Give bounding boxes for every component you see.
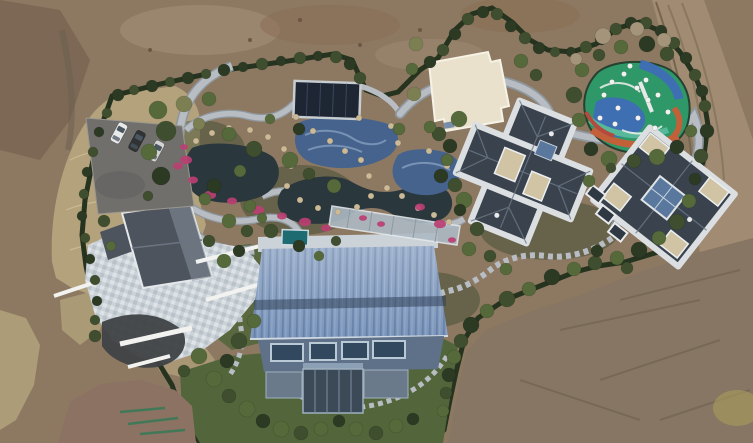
rock <box>327 138 333 144</box>
flower-bed <box>180 156 192 164</box>
shrub <box>407 413 419 425</box>
shrub <box>218 64 230 76</box>
shrub <box>699 100 711 112</box>
window <box>343 343 367 358</box>
flower-bed <box>377 221 385 227</box>
central-glass-wall <box>303 369 363 413</box>
play-equipment <box>609 79 614 84</box>
stone <box>248 38 252 42</box>
shrub <box>689 173 701 185</box>
shrub <box>201 69 211 79</box>
shrub <box>193 118 205 130</box>
shrub <box>331 236 341 246</box>
solar-canopy <box>293 81 360 119</box>
shrub <box>176 96 192 112</box>
rock <box>395 140 401 146</box>
shrub <box>276 56 286 66</box>
shrub <box>567 262 581 276</box>
shrub <box>550 47 560 57</box>
shrub <box>448 178 462 192</box>
shrub <box>694 149 708 163</box>
shrub <box>652 231 666 245</box>
shrub <box>443 139 457 153</box>
shrub <box>499 291 515 307</box>
shrub <box>94 127 104 137</box>
shrub <box>246 141 262 157</box>
shrub <box>477 6 489 18</box>
rock <box>426 148 432 154</box>
flower-bed <box>227 198 237 205</box>
shrub <box>696 85 708 97</box>
shrub <box>349 422 363 436</box>
rock <box>431 212 437 218</box>
stone <box>358 43 362 47</box>
shrub <box>222 214 236 228</box>
rock <box>335 209 341 215</box>
rock <box>358 157 364 163</box>
shrub <box>303 168 315 180</box>
rock <box>342 148 348 154</box>
rock <box>354 204 360 210</box>
flower-bed <box>448 237 456 243</box>
rock <box>315 205 321 211</box>
shrub <box>670 140 684 154</box>
aerial-photo-stage <box>0 0 753 443</box>
rock <box>293 114 299 120</box>
shrub <box>680 52 692 64</box>
shrub <box>389 419 403 433</box>
shrub <box>544 269 560 285</box>
shrub <box>202 92 216 106</box>
shrub <box>566 87 582 103</box>
shrub <box>241 225 253 237</box>
bare-tree <box>570 53 582 65</box>
shrub <box>354 72 366 84</box>
shrub <box>256 414 270 428</box>
shrub <box>393 123 405 135</box>
shrub <box>424 121 436 133</box>
shrub <box>293 123 305 135</box>
shrub <box>294 52 306 64</box>
shrub <box>256 58 268 70</box>
parking-stain <box>95 171 145 199</box>
shrub <box>206 371 222 387</box>
shrub <box>437 405 449 417</box>
shrub <box>106 241 116 251</box>
shrub <box>217 254 231 268</box>
shrub <box>580 41 592 53</box>
shrub <box>330 51 342 63</box>
shrub <box>454 334 468 348</box>
shrub <box>621 262 633 274</box>
shrub <box>484 250 496 262</box>
play-equipment <box>645 97 650 102</box>
shrub <box>462 13 474 25</box>
shrub <box>514 54 528 68</box>
shrub <box>199 193 211 205</box>
flower-bed <box>321 225 331 232</box>
shrub <box>149 101 167 119</box>
shrub <box>463 317 479 333</box>
shrub <box>90 315 100 325</box>
shrub <box>505 20 517 32</box>
shrub <box>89 330 101 342</box>
bare-tree <box>657 33 671 47</box>
play-equipment <box>621 71 626 76</box>
shrub <box>129 85 139 95</box>
shrub <box>239 401 255 417</box>
shrub <box>588 256 602 270</box>
roof-highlight <box>250 246 448 340</box>
shrub <box>614 40 628 54</box>
shrub <box>610 23 622 35</box>
shrub <box>682 194 696 208</box>
flower-bed <box>415 204 425 211</box>
dirt-streak <box>260 5 400 45</box>
shrub <box>447 350 461 364</box>
flower-bed <box>434 220 446 228</box>
stone <box>148 48 152 52</box>
play-equipment <box>615 105 620 110</box>
shrub <box>231 333 247 349</box>
shrub <box>182 72 194 84</box>
window <box>311 344 335 359</box>
dirt-mound <box>120 5 280 55</box>
play-equipment <box>635 115 640 120</box>
shrub <box>156 121 176 141</box>
bare-tree <box>595 28 611 44</box>
shrub <box>191 348 207 364</box>
shrub <box>333 415 345 427</box>
shrub <box>112 89 124 101</box>
shrub <box>480 304 494 318</box>
stone <box>298 18 302 22</box>
stone <box>418 28 422 32</box>
rock <box>193 138 199 144</box>
shrub <box>265 114 275 124</box>
shrub <box>434 169 448 183</box>
shrub <box>572 113 586 127</box>
flower-bed <box>173 163 183 170</box>
rock <box>247 127 253 133</box>
shrub <box>247 314 261 328</box>
play-equipment <box>655 92 660 97</box>
rock <box>284 183 290 189</box>
shrub <box>314 422 328 436</box>
rock <box>399 193 405 199</box>
shrub <box>685 125 697 137</box>
estate-aerial-photo <box>0 0 753 443</box>
shrub <box>282 152 298 168</box>
rock <box>368 193 374 199</box>
play-equipment <box>643 77 648 82</box>
shrub <box>244 200 256 212</box>
side-wing-west <box>266 372 302 398</box>
rock <box>384 185 390 191</box>
shrub <box>222 127 236 141</box>
shrub <box>660 47 674 61</box>
rock <box>297 197 303 203</box>
shrub <box>313 51 323 61</box>
shrub <box>519 32 531 44</box>
shrub <box>77 211 87 221</box>
cream-pavilion-roof <box>429 52 509 131</box>
play-equipment <box>665 109 670 114</box>
flower-bed <box>359 215 367 221</box>
shrub <box>407 87 421 101</box>
play-equipment <box>601 92 606 97</box>
shrub <box>522 282 536 296</box>
shrub <box>178 365 190 377</box>
bare-tree <box>630 22 644 36</box>
shrub <box>451 111 467 127</box>
shrub <box>143 191 153 201</box>
shrub <box>409 37 423 51</box>
shrub <box>591 245 603 257</box>
shrub <box>437 44 449 56</box>
shrub <box>406 63 418 75</box>
shrub <box>583 175 595 187</box>
shrub <box>203 235 215 247</box>
flower-bed <box>180 144 188 150</box>
rock <box>310 128 316 134</box>
shrub <box>222 389 236 403</box>
shrub <box>639 36 655 52</box>
play-equipment <box>597 115 602 120</box>
shrub <box>98 215 110 227</box>
shrub <box>454 204 466 216</box>
shrub <box>669 214 685 230</box>
shrub <box>440 387 452 399</box>
shrub <box>470 222 484 236</box>
shrub <box>344 58 356 70</box>
shrub <box>294 426 308 440</box>
shrub <box>207 179 221 193</box>
rock <box>265 134 271 140</box>
shrub <box>530 69 542 81</box>
shrub <box>90 275 100 285</box>
shrub <box>424 56 436 68</box>
play-equipment <box>627 63 632 68</box>
shrub <box>627 154 641 168</box>
shrub <box>92 296 102 306</box>
shrub <box>152 167 170 185</box>
shrub <box>606 163 616 173</box>
shrub <box>233 245 245 257</box>
play-equipment <box>652 125 657 130</box>
shrub <box>85 254 95 264</box>
shrub <box>293 240 305 252</box>
play-equipment <box>612 121 617 126</box>
shrub <box>80 233 90 243</box>
shrub <box>610 251 624 265</box>
flower-bed <box>299 218 311 226</box>
shrub <box>234 165 246 177</box>
shrub <box>257 213 267 223</box>
play-equipment <box>634 85 639 90</box>
shrub <box>220 354 234 368</box>
shrub <box>327 179 341 193</box>
rock <box>281 146 287 152</box>
side-wing-east <box>364 370 408 398</box>
shrub <box>88 147 98 157</box>
shrub <box>79 189 89 199</box>
shrub <box>238 62 248 72</box>
flower-bed <box>188 177 198 184</box>
solar-panel-roof <box>293 81 360 119</box>
rock <box>366 173 372 179</box>
shrub <box>369 426 383 440</box>
shrub <box>689 69 701 81</box>
window <box>374 342 404 357</box>
shrub <box>442 368 456 382</box>
shrub <box>491 8 503 20</box>
shrub <box>441 154 453 166</box>
rock <box>356 115 362 121</box>
shrub <box>82 167 92 177</box>
shrub <box>141 144 157 160</box>
shrub <box>102 108 112 118</box>
shrub <box>146 80 158 92</box>
shrub <box>593 49 605 61</box>
rock <box>209 130 215 136</box>
shrub <box>314 251 324 261</box>
shrub <box>462 242 476 256</box>
koi-pond-west <box>184 143 279 202</box>
shrub <box>273 421 289 437</box>
shrub <box>584 142 598 156</box>
shrub <box>500 263 512 275</box>
shrub <box>264 224 278 238</box>
flower-bed <box>277 213 287 220</box>
shrub <box>449 28 461 40</box>
shrub <box>649 149 665 165</box>
window <box>272 345 302 360</box>
shrub <box>631 242 647 258</box>
rock <box>446 219 452 225</box>
shrub <box>165 77 175 87</box>
shrub <box>700 124 714 138</box>
shrub <box>533 42 545 54</box>
